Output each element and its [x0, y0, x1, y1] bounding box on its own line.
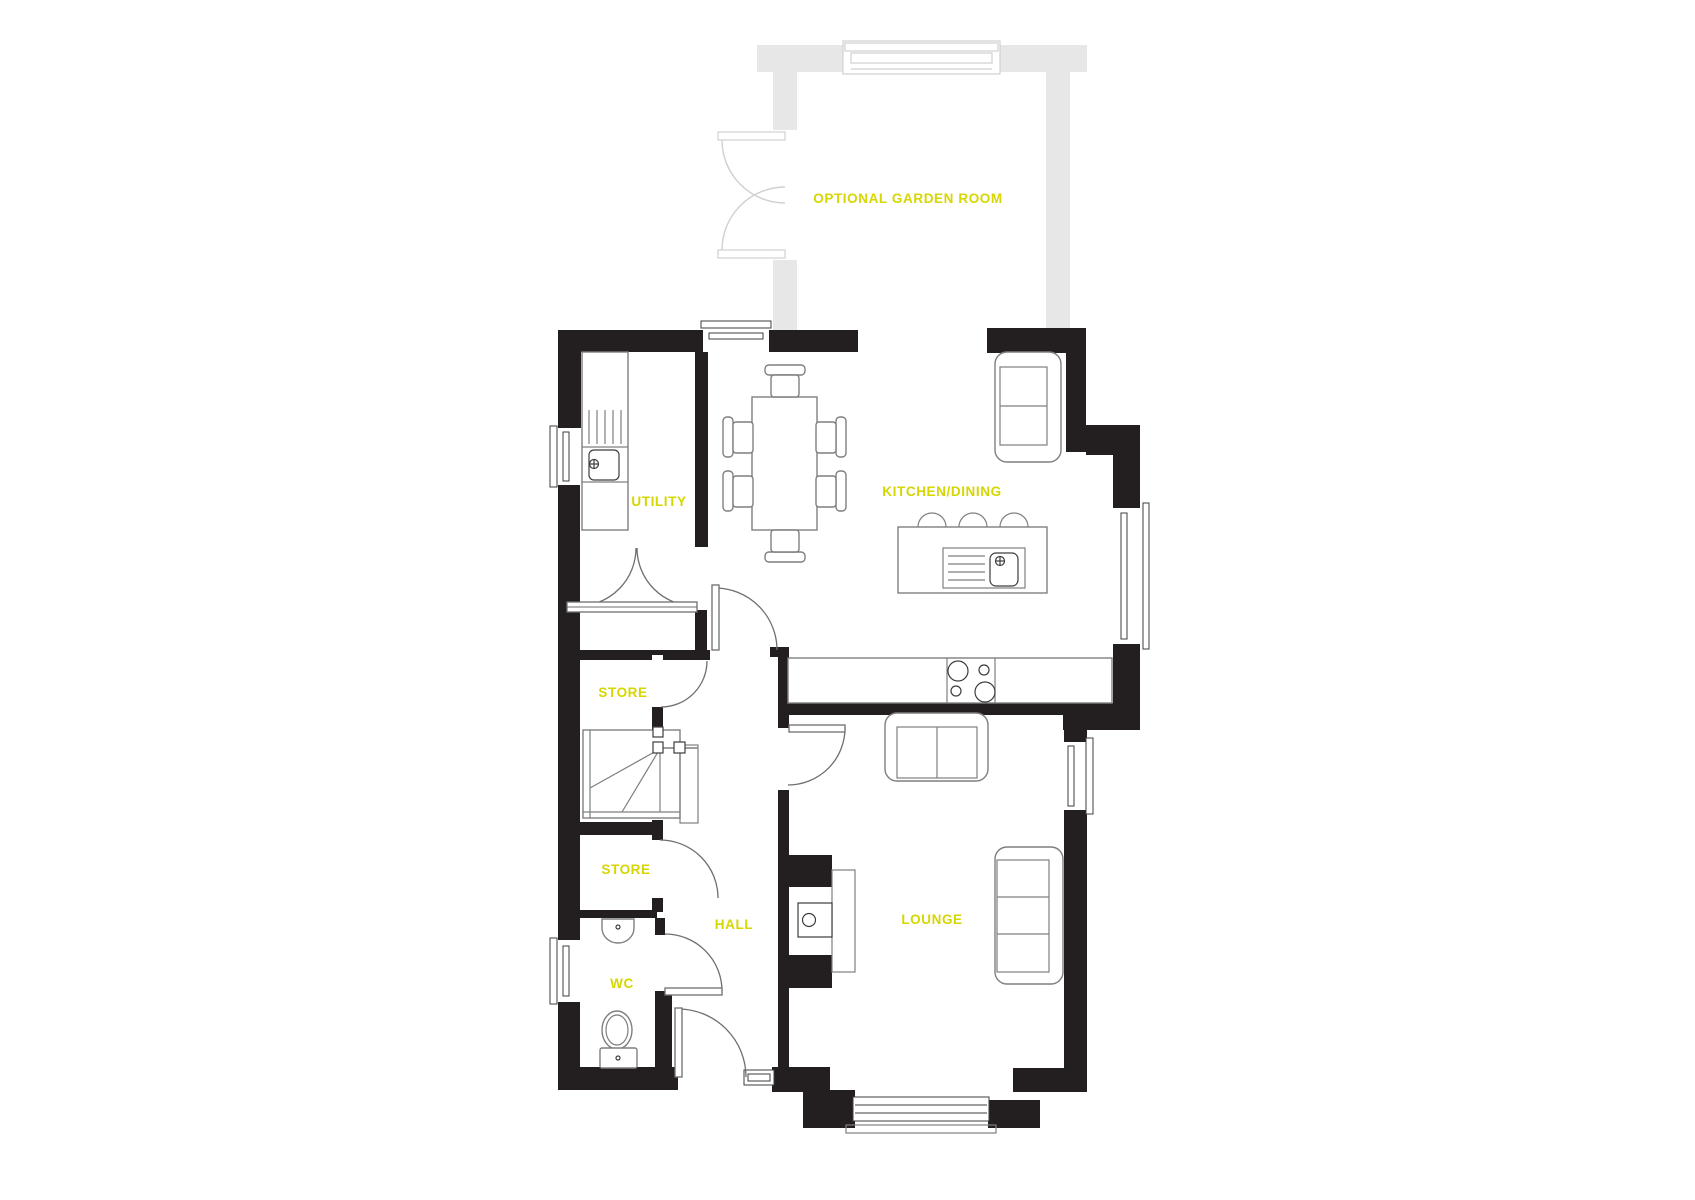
stairs [583, 727, 698, 823]
garden-room-french-doors [718, 132, 785, 258]
wc-basin [602, 919, 634, 943]
label-store-upper: STORE [598, 685, 647, 700]
kitchen-island [898, 513, 1047, 593]
label-utility: UTILITY [631, 494, 686, 509]
floor-plan-drawing: OPTIONAL GARDEN ROOM UTILITY KITCHEN/DIN… [0, 0, 1695, 1200]
newel-post [653, 742, 663, 753]
newel-post [674, 742, 685, 753]
kitchen-sofa [995, 352, 1061, 462]
front-door [675, 1008, 746, 1077]
lounge-door [788, 725, 845, 785]
lounge-sofa-top [885, 713, 988, 781]
utility-counter [582, 352, 628, 530]
utility-window [550, 426, 582, 487]
front-door-sidelight [744, 1070, 774, 1085]
kitchen-side-window [1110, 503, 1149, 649]
label-lounge: LOUNGE [901, 912, 962, 927]
wc-window [550, 938, 582, 1004]
utility-sink [589, 450, 619, 480]
kitchen-counter-hob [788, 658, 1112, 703]
label-hall: HALL [715, 917, 753, 932]
utility-double-doors [567, 548, 697, 612]
newel-post [653, 727, 663, 737]
wc-door [665, 934, 722, 995]
label-kitchen-dining: KITCHEN/DINING [882, 484, 1001, 499]
door-jamb-notch [652, 655, 663, 660]
wc-toilet [600, 1011, 637, 1068]
store-lower-door [660, 840, 718, 898]
island-stools [918, 513, 1028, 527]
label-garden-room: OPTIONAL GARDEN ROOM [813, 191, 1003, 206]
lounge-sofa-right [995, 847, 1063, 984]
kitchen-top-window [701, 321, 771, 352]
lounge-side-window [1062, 738, 1093, 814]
garden-room-structure [718, 41, 1087, 330]
floor-plan: OPTIONAL GARDEN ROOM UTILITY KITCHEN/DIN… [0, 0, 1695, 1200]
island-sink [990, 553, 1018, 586]
label-wc: WC [610, 976, 634, 991]
garden-room-window [843, 41, 1000, 74]
store-upper-door [661, 661, 707, 707]
lounge-bay-window [846, 1097, 996, 1133]
dining-table [752, 397, 817, 530]
label-store-lower: STORE [601, 862, 650, 877]
kitchen-door [712, 585, 777, 650]
